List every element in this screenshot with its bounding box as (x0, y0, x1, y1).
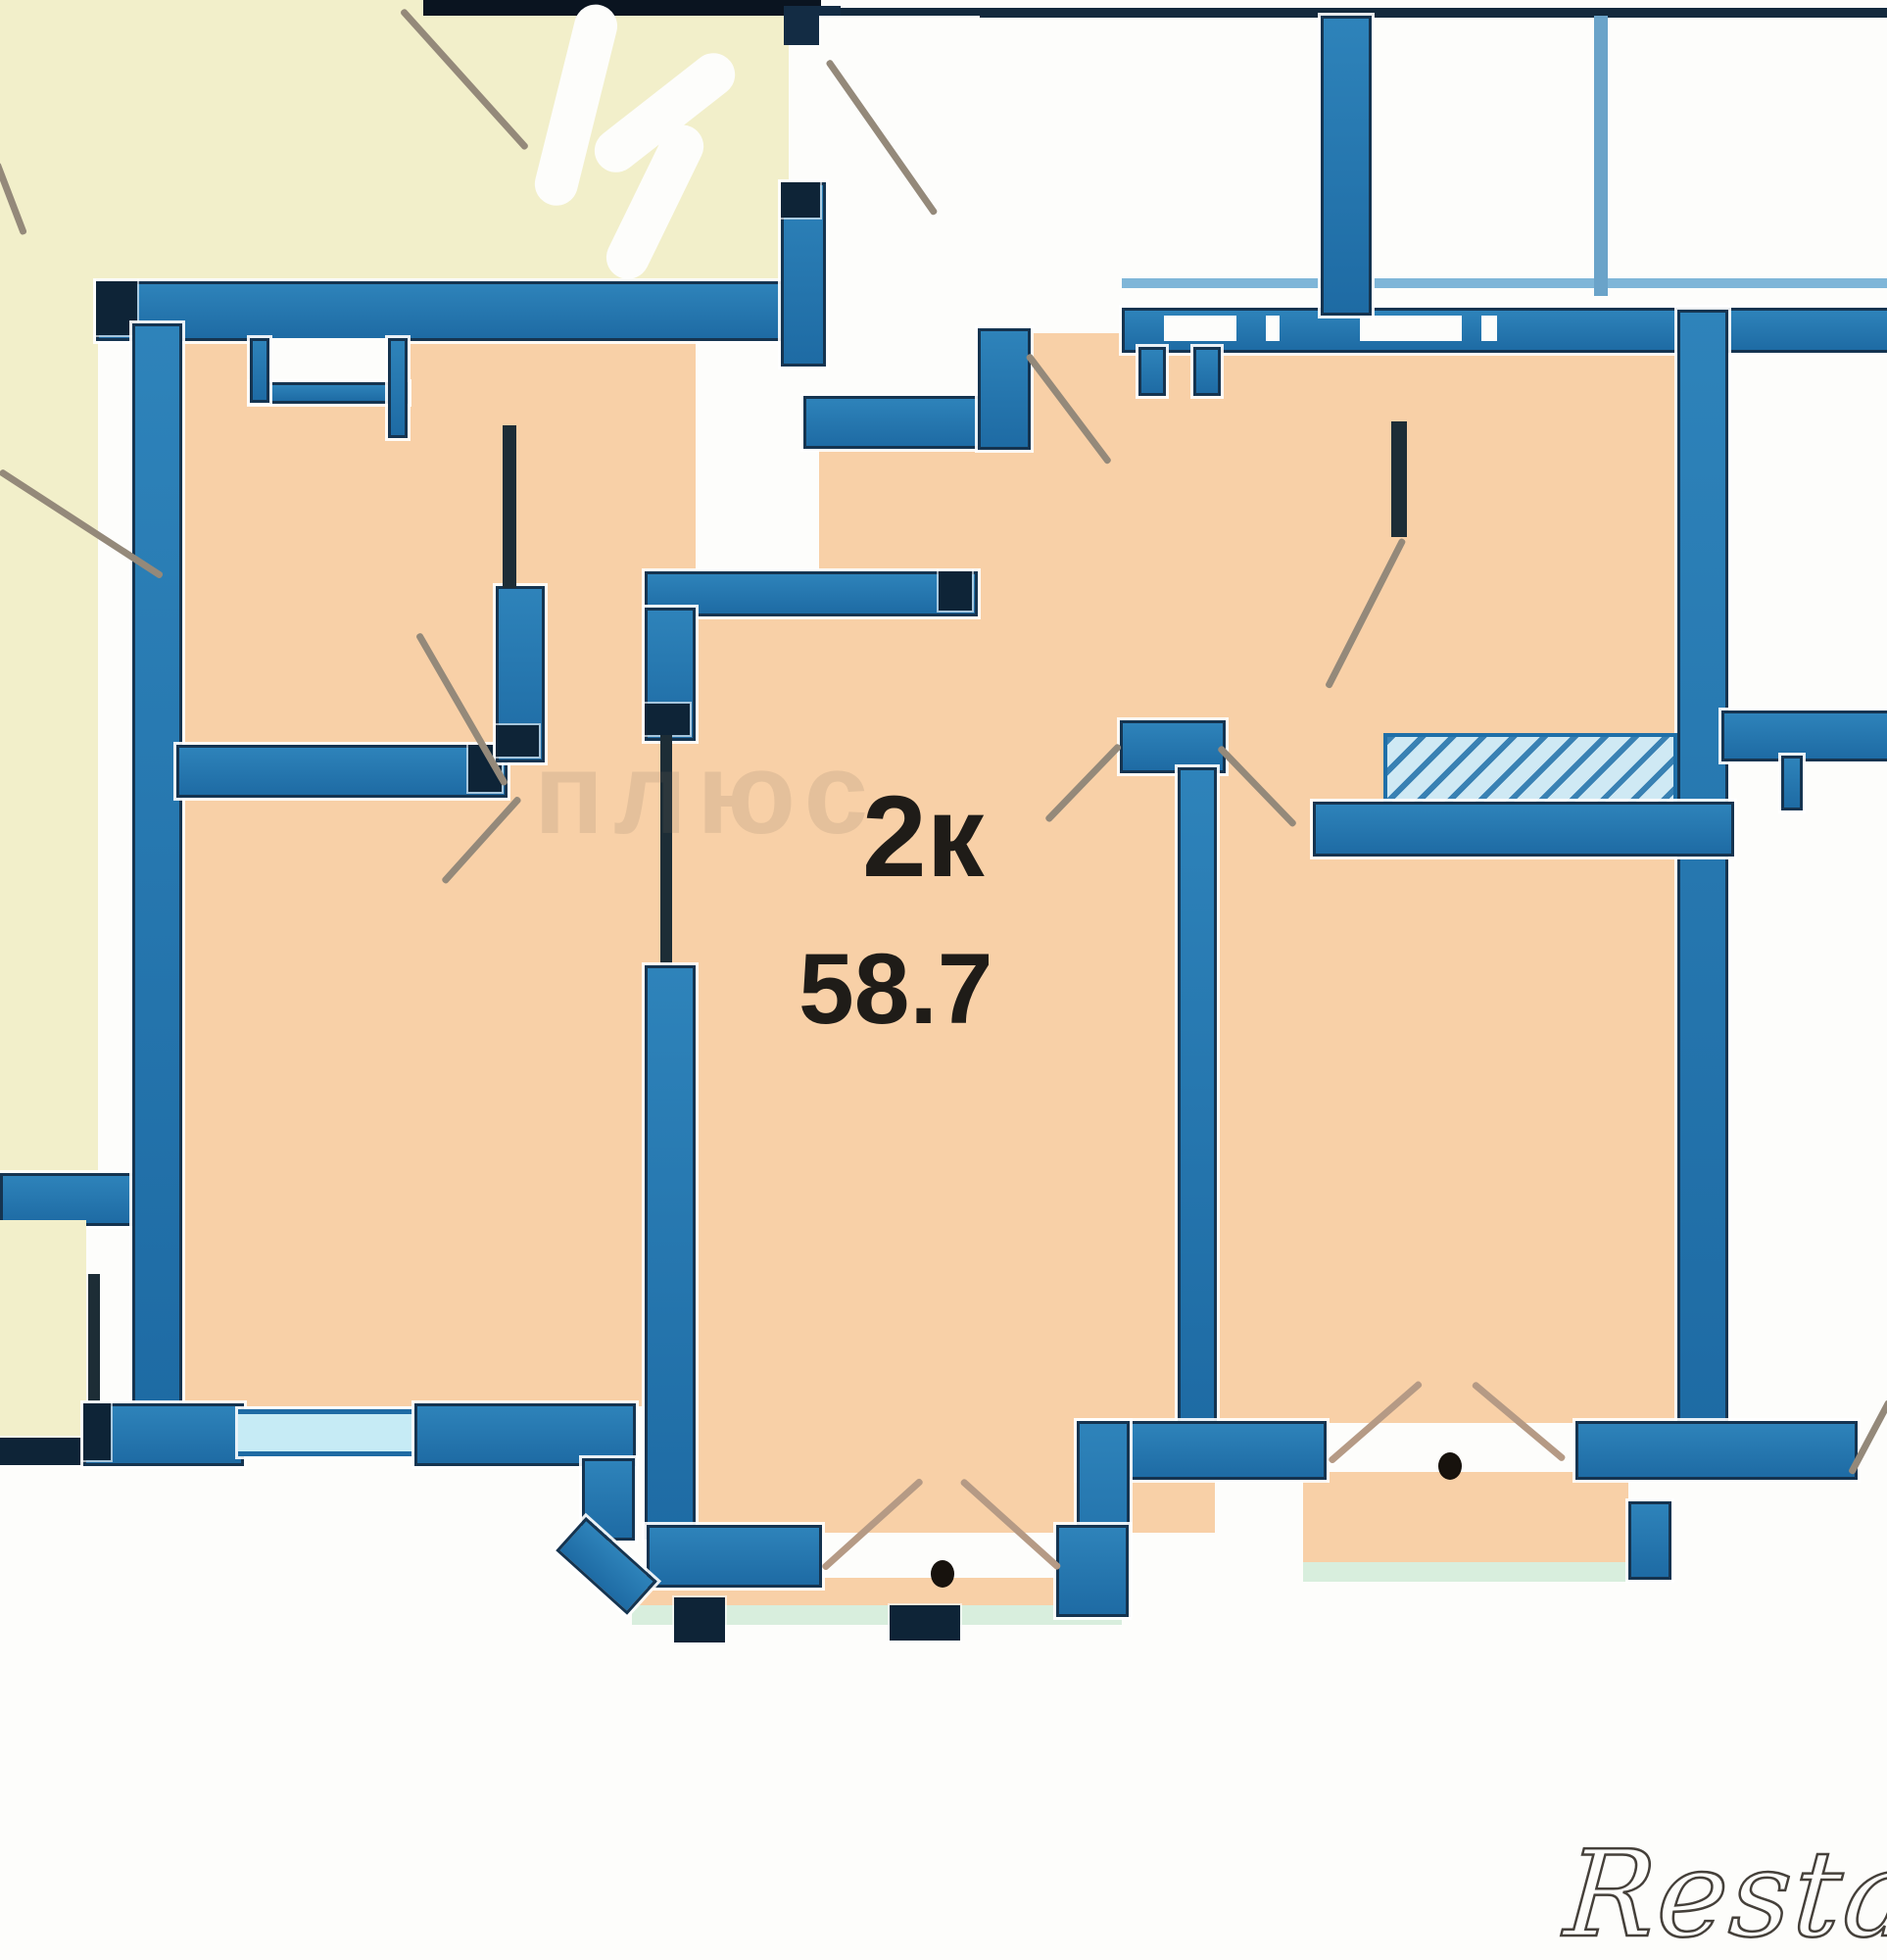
neighbor-strip-left (0, 292, 98, 1174)
watermark-restate: Restate (1561, 1825, 1887, 1960)
wall-left-divider (176, 745, 508, 798)
balcony-door-right-pivot (1438, 1452, 1462, 1480)
window-band-top-line (1122, 278, 1887, 288)
floorplan-canvas: 2к 58.7 плюс Restate (0, 0, 1887, 1960)
wall-bottom-left2 (414, 1403, 636, 1466)
window-slot (1360, 316, 1462, 341)
wall-bottom-living-right (1056, 1525, 1129, 1617)
wall-right-neighbor-stub (1781, 756, 1803, 810)
niche-bottom (250, 382, 409, 404)
window-bottom-left (238, 1409, 414, 1456)
wall-kitchen-bottom (1313, 802, 1734, 857)
balcony-post (890, 1605, 960, 1641)
wall-right-outer (1677, 310, 1728, 1429)
wall-entry-bottom (803, 396, 997, 449)
neighbor-area-bottom (0, 1220, 86, 1438)
window-slot (1266, 316, 1280, 341)
niche-stub-left (250, 338, 269, 403)
wall-bottom-bedroom-right (1575, 1421, 1858, 1480)
apartment-type-label: 2к (862, 779, 985, 895)
wall-top-left-cap (96, 281, 137, 335)
wall-left-outer (132, 323, 182, 1412)
partition-left-frame-line (503, 425, 516, 588)
wall-top-left (96, 281, 793, 341)
wall-central-lower (645, 965, 696, 1540)
wall-bedroom-divider (1178, 767, 1217, 1429)
wall-central-top-cap (939, 571, 972, 611)
balcony-door-left-pivot (931, 1560, 954, 1588)
apartment-area-label: 58.7 (798, 939, 993, 1039)
balcony-right-edge (1303, 1562, 1628, 1582)
partition-left-door-cap (496, 725, 539, 757)
wall-top-right (1122, 308, 1887, 353)
wall-entrance-cap (781, 182, 820, 218)
neighbor-wall (0, 1173, 143, 1226)
window-slot (1481, 316, 1497, 341)
wall-entry-stub (978, 328, 1031, 450)
room-bedroom-right (1209, 764, 1677, 1423)
niche-stub-right (388, 338, 408, 438)
wall-corridor-thin (1594, 16, 1608, 296)
wall-corridor-vertical (1321, 16, 1372, 316)
wall-right-neighbor (1721, 710, 1887, 761)
watermark-center: плюс (534, 727, 878, 860)
entry-hall-outside (819, 16, 980, 398)
top-black-bar (423, 0, 821, 16)
vent-shaft-hatched (1383, 733, 1677, 809)
niche-opening (250, 338, 403, 387)
window-stub (1193, 347, 1221, 396)
window-stub (1138, 347, 1166, 396)
wall-bottom-left-cap (83, 1403, 111, 1460)
window-slot (1164, 316, 1236, 341)
wall-bottom-living-left (647, 1525, 822, 1588)
balcony-post (674, 1597, 725, 1642)
balcony-right-stub (1628, 1501, 1671, 1580)
wall-hall-door-stub (1120, 720, 1226, 773)
kitchen-door-frame-line (1391, 421, 1407, 537)
